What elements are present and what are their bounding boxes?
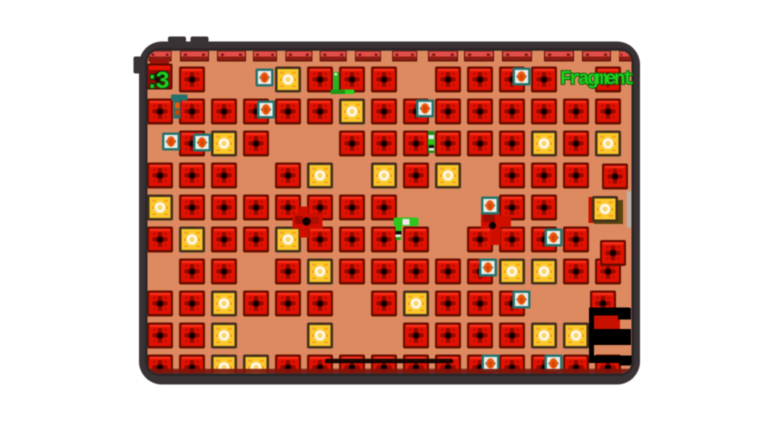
svg-text:Fragment: Fragment: [560, 68, 633, 90]
svg-text::3: :3: [145, 69, 169, 96]
